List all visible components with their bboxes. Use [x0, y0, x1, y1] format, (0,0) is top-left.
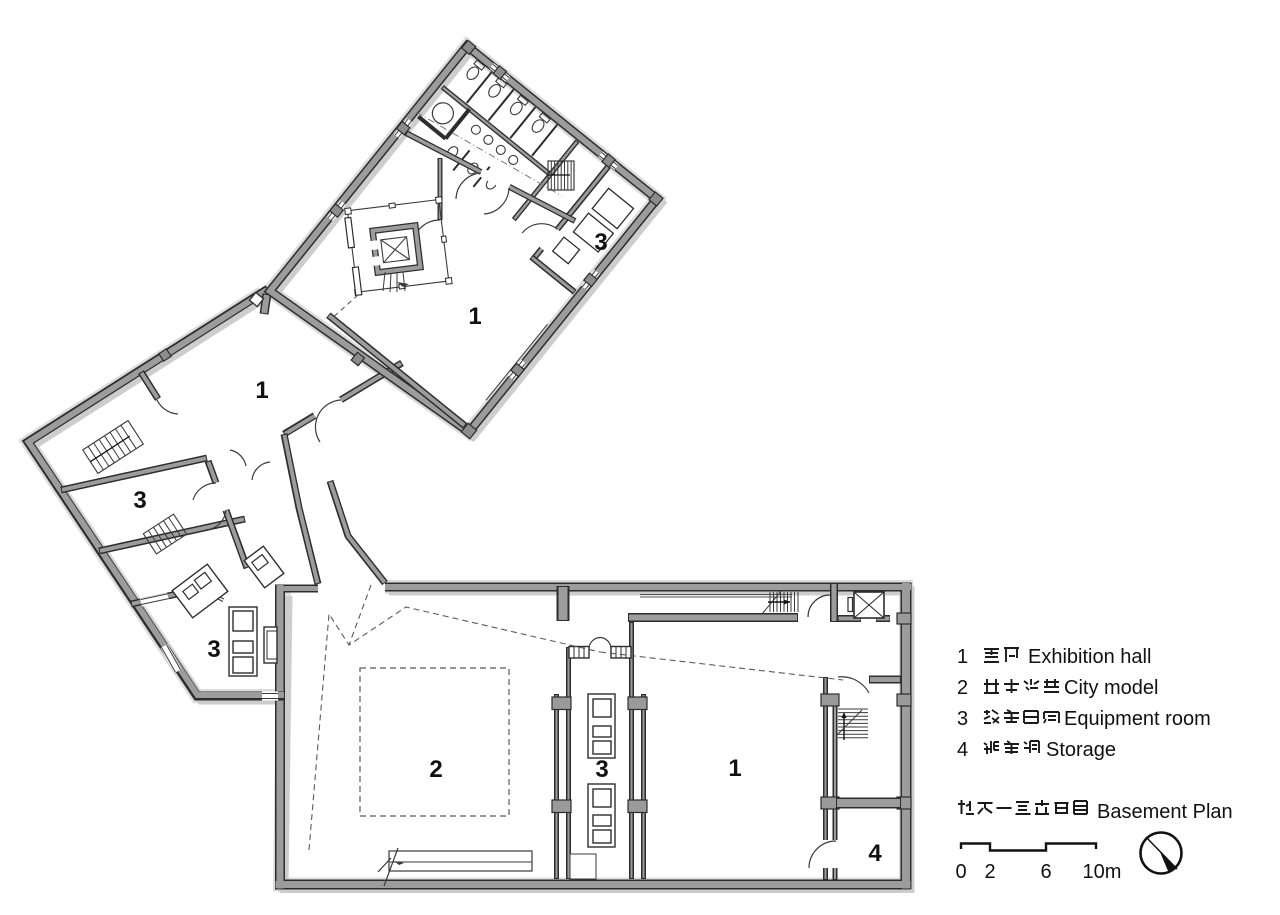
svg-text:1: 1	[957, 646, 968, 668]
svg-text:Equipment room: Equipment room	[1064, 708, 1211, 730]
svg-text:1: 1	[255, 377, 268, 404]
svg-text:3: 3	[133, 487, 146, 514]
svg-text:6: 6	[1040, 861, 1051, 883]
svg-text:Exhibition hall: Exhibition hall	[1028, 646, 1151, 668]
svg-text:0: 0	[955, 861, 966, 883]
svg-text:1: 1	[468, 303, 481, 330]
svg-text:2: 2	[957, 677, 968, 699]
svg-text:10m: 10m	[1083, 861, 1122, 883]
svg-text:3: 3	[595, 756, 608, 783]
svg-text:City model: City model	[1064, 677, 1158, 699]
svg-text:Storage: Storage	[1046, 739, 1116, 761]
svg-text:3: 3	[594, 229, 607, 256]
svg-text:1: 1	[728, 755, 741, 782]
svg-text:4: 4	[868, 840, 882, 867]
svg-text:3: 3	[957, 708, 968, 730]
svg-text:2: 2	[429, 756, 442, 783]
svg-text:4: 4	[957, 739, 968, 761]
svg-text:3: 3	[207, 636, 220, 663]
svg-text:Basement Plan: Basement Plan	[1097, 801, 1233, 823]
svg-text:2: 2	[984, 861, 995, 883]
